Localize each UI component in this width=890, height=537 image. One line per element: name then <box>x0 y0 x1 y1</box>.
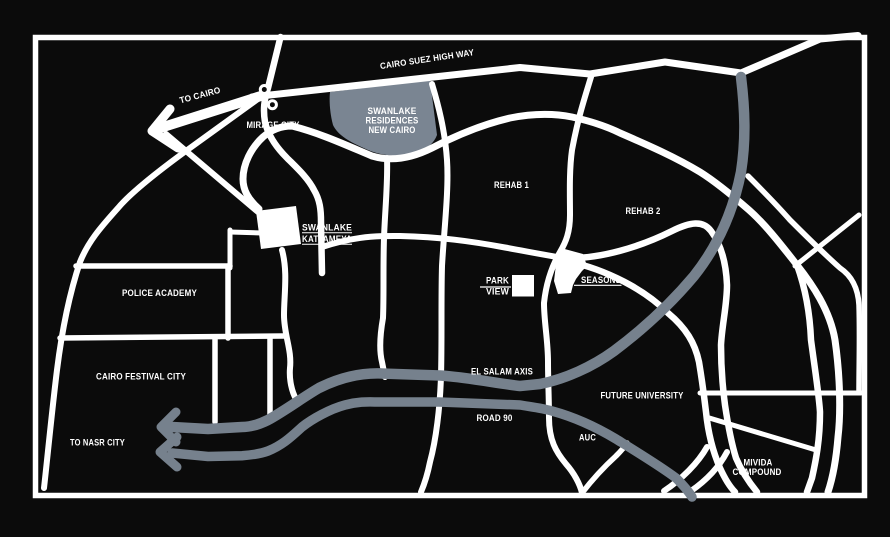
svg-text:VIEW: VIEW <box>486 287 509 297</box>
svg-text:EL SALAM AXIS: EL SALAM AXIS <box>471 367 533 377</box>
svg-text:CAIRO FESTIVAL CITY: CAIRO FESTIVAL CITY <box>96 372 186 382</box>
svg-text:COMPOUND: COMPOUND <box>733 467 782 477</box>
svg-text:KATTAMEYA: KATTAMEYA <box>302 234 352 244</box>
svg-text:PARK: PARK <box>486 276 509 286</box>
svg-text:AUC: AUC <box>579 432 596 442</box>
svg-text:ROAD 90: ROAD 90 <box>477 413 513 423</box>
svg-text:RESIDENCES: RESIDENCES <box>366 116 419 126</box>
svg-text:TO NASR CITY: TO NASR CITY <box>70 437 125 447</box>
svg-text:SEASONS: SEASONS <box>581 275 621 285</box>
svg-text:MIRAGE CITY: MIRAGE CITY <box>247 120 300 130</box>
svg-text:MIVIDA: MIVIDA <box>744 458 773 468</box>
svg-text:SWANLAKE: SWANLAKE <box>302 223 352 233</box>
svg-text:POLICE ACADEMY: POLICE ACADEMY <box>122 288 197 298</box>
svg-text:REHAB 1: REHAB 1 <box>494 180 529 190</box>
svg-text:SWANLAKE: SWANLAKE <box>368 106 417 116</box>
svg-text:NEW CAIRO: NEW CAIRO <box>369 125 416 135</box>
svg-text:REHAB 2: REHAB 2 <box>626 206 661 216</box>
svg-text:FUTURE UNIVERSITY: FUTURE UNIVERSITY <box>601 391 684 401</box>
